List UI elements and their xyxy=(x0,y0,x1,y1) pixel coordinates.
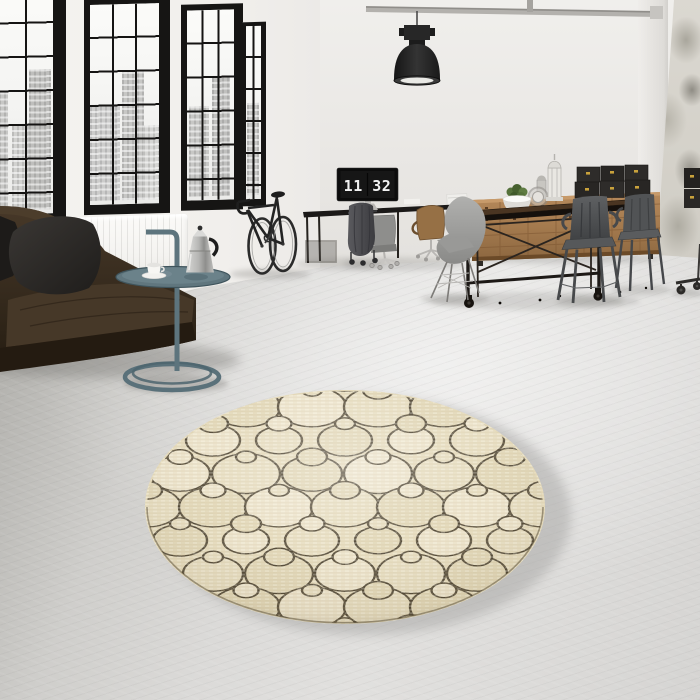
coat-rack xyxy=(348,203,378,266)
room-photo: 11 32 xyxy=(0,0,700,700)
flip-clock-display: 11 32 xyxy=(344,177,392,195)
furniture-layer: 11 32 xyxy=(0,0,700,700)
lantern xyxy=(546,154,563,201)
pendant-lamp xyxy=(394,11,440,85)
bicycle xyxy=(237,191,296,274)
rolling-caster-base xyxy=(676,244,700,295)
pillow xyxy=(9,216,101,294)
round-rug xyxy=(113,356,577,656)
wire-sphere xyxy=(529,188,548,207)
ceiling-pipe xyxy=(366,0,663,19)
moka-pot xyxy=(186,226,217,273)
